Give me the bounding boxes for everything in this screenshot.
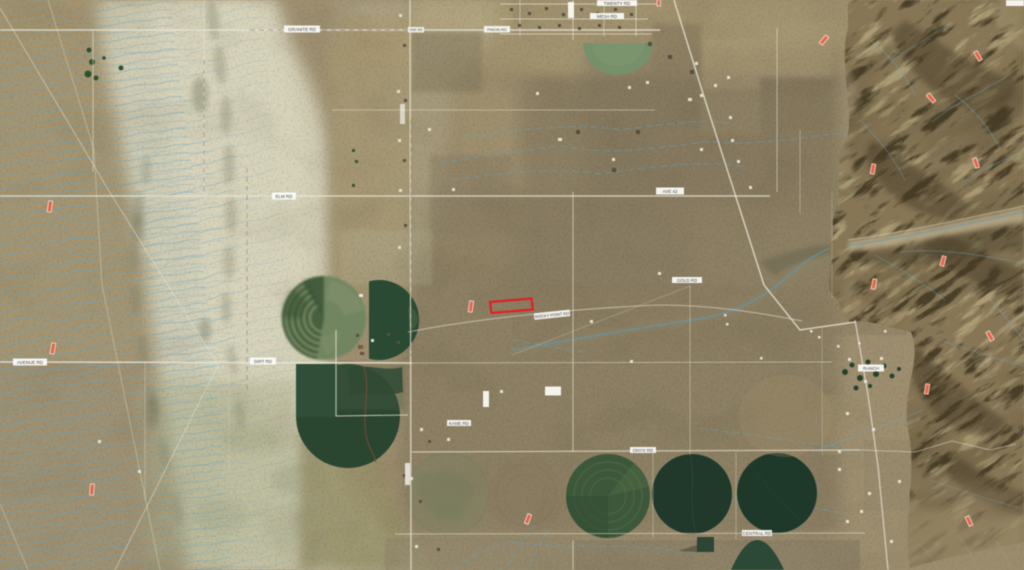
svg-text:AVE 42: AVE 42: [663, 189, 678, 194]
svg-text:GOLD RD: GOLD RD: [677, 278, 698, 283]
svg-text:OAK RD: OAK RD: [409, 28, 423, 32]
svg-text:GRANITE RD: GRANITE RD: [288, 27, 317, 32]
svg-text:ONYX RD: ONYX RD: [633, 448, 654, 453]
svg-text:KANE RD: KANE RD: [449, 421, 470, 426]
svg-text:TWENTY RD: TWENTY RD: [604, 1, 631, 6]
svg-text:RANCH: RANCH: [863, 366, 879, 371]
svg-text:ELM RD: ELM RD: [275, 194, 293, 199]
svg-text:DIRT RD: DIRT RD: [254, 359, 273, 364]
svg-text:MESA RD: MESA RD: [597, 14, 618, 19]
svg-text:AVENUE RD: AVENUE RD: [17, 360, 44, 365]
svg-text:CENTRAL RD: CENTRAL RD: [743, 531, 772, 536]
svg-text:PINON RD: PINON RD: [487, 27, 507, 32]
